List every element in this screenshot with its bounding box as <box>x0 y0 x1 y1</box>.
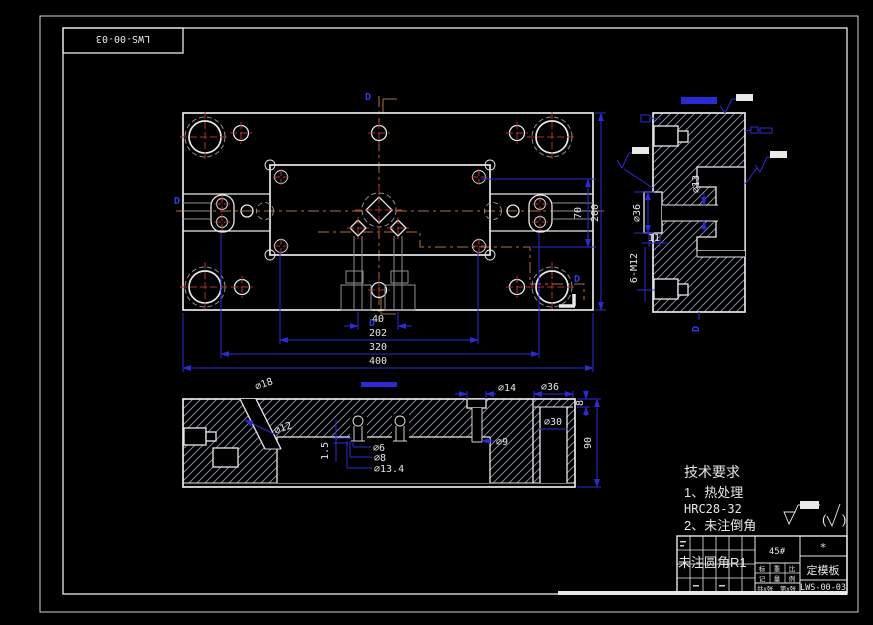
material-spec: 45# <box>769 547 786 557</box>
dim-d30: ⌀30 <box>544 417 562 428</box>
tech-req-title: 技术要求 <box>684 464 740 480</box>
tech-req-line4-overlay: 未注圆角R1 <box>678 555 747 570</box>
cad-canvas: LWS-00-03 <box>0 0 873 625</box>
dim-200: 200 <box>590 204 601 222</box>
dim-40: 40 <box>372 314 384 325</box>
section-marker-left: D <box>174 196 180 207</box>
tech-req-line2: HRC28-32 <box>684 502 742 516</box>
sheet-current: 第x张 <box>780 584 797 593</box>
dim-d36-section: ⌀36 <box>541 382 559 393</box>
sprue-center <box>341 186 415 310</box>
dim-6xM12: 6-M12 <box>629 253 640 283</box>
sheet-total: 共x张 <box>757 584 774 593</box>
side-view: D <box>644 113 745 332</box>
label-scale-1: 比 <box>789 564 796 573</box>
drawing-number: LWS-00-03 <box>800 583 846 593</box>
tech-requirements: 技术要求 1、热处理 HRC28-32 2、未注倒角 <box>684 464 756 533</box>
title-block: 45# * 定模板 LWS-00-03 标 记 重 量 比 例 共x张 第x张 … <box>677 536 847 593</box>
dim-90: 90 <box>583 437 594 449</box>
dim-d36-side: ⌀36 <box>632 204 643 222</box>
section-marker-top: D <box>365 92 371 103</box>
dim-202: 202 <box>369 328 387 339</box>
section-marker-side: D <box>691 326 702 332</box>
datum-bar <box>361 382 397 387</box>
label-mark-2: 记 <box>759 575 766 583</box>
dim-400: 400 <box>369 356 387 367</box>
dim-d9: ⌀9 <box>496 437 508 448</box>
dim-d18: ⌀18 <box>254 376 275 393</box>
tech-req-line1: 1、热处理 <box>684 485 743 500</box>
company-mark: * <box>820 541 827 554</box>
surface-roughness-icon-top <box>681 94 753 113</box>
frame-corner-label: LWS-00-03 <box>96 33 150 44</box>
part-name: 定模板 <box>807 563 840 577</box>
roughness-value-box <box>800 501 819 509</box>
titleblock-stamp-marks <box>680 541 686 543</box>
tech-req-line3: 2、未注倒角 <box>684 518 756 533</box>
label-weight-2: 量 <box>774 575 781 583</box>
cad-sheet: LWS-00-03 <box>0 0 873 625</box>
sprue-bush-flange <box>644 192 662 233</box>
dim-11: 11 <box>648 233 660 244</box>
dim-1-5: 1.5 <box>320 442 331 460</box>
dim-8: 8 <box>575 400 586 406</box>
section-marker-corner: D <box>574 274 580 285</box>
dim-d8: ⌀8 <box>374 453 386 464</box>
label-weight-1: 重 <box>774 565 781 573</box>
dim-d13: ⌀13 <box>691 175 702 193</box>
paren-open: ( <box>822 512 827 527</box>
surface-finish-note: ( ) <box>784 501 846 527</box>
dim-d14: ⌀14 <box>498 383 516 394</box>
dim-d13-4: ⌀13.4 <box>374 464 404 475</box>
dim-70: 70 <box>573 207 584 219</box>
surface-roughness-icon-right <box>745 127 787 184</box>
dim-320: 320 <box>369 342 387 353</box>
label-scale-2: 例 <box>789 574 796 583</box>
label-mark-1: 标 <box>759 564 766 573</box>
paren-close: ) <box>842 512 846 527</box>
check-icon <box>827 504 840 526</box>
